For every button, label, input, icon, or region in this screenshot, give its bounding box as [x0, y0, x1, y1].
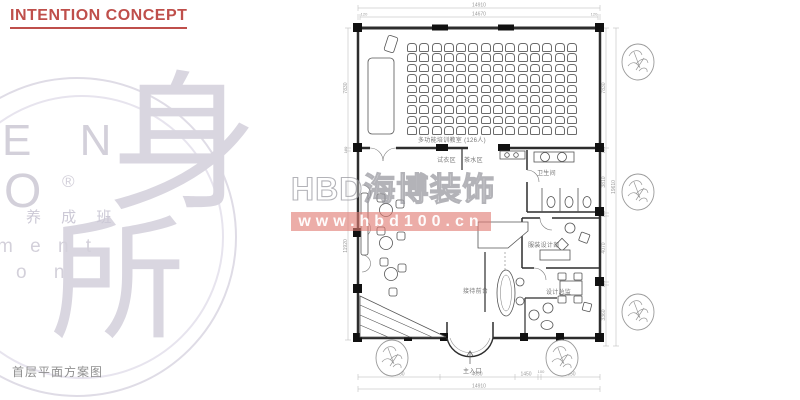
seat-icon — [481, 105, 491, 114]
seat-icon — [530, 74, 540, 83]
seat-icon — [481, 95, 491, 104]
seat-icon — [468, 105, 478, 114]
room-label-design-director: 设计总监 — [546, 287, 571, 296]
seat-icon — [505, 95, 515, 104]
seat-icon — [481, 53, 491, 62]
seat-icon — [518, 95, 528, 104]
seat-icon — [542, 95, 552, 104]
seat-icon — [419, 95, 429, 104]
seat-icon — [542, 126, 552, 135]
seat-icon — [419, 85, 429, 94]
dim-label: 14910 — [472, 384, 486, 390]
seat-icon — [505, 126, 515, 135]
seat-icon — [456, 74, 466, 83]
room-label-classroom: 多功能培训教室 (126人) — [418, 135, 486, 144]
seat-icon — [505, 105, 515, 114]
seat-icon — [432, 116, 442, 125]
dim-label: 7830 — [343, 82, 349, 93]
seat-icon — [407, 53, 417, 62]
seat-icon — [493, 85, 503, 94]
seat-icon — [468, 74, 478, 83]
seat-icon — [505, 116, 515, 125]
seat-icon — [555, 105, 565, 114]
dim-label: 14910 — [472, 3, 486, 9]
room-label-fitting: 试衣区 — [437, 155, 456, 164]
seat-icon — [530, 43, 540, 52]
seat-icon — [518, 85, 528, 94]
seat-icon — [481, 116, 491, 125]
seat-icon — [555, 53, 565, 62]
seat-icon — [444, 53, 454, 62]
seat-icon — [493, 95, 503, 104]
seat-icon — [567, 85, 577, 94]
logo-calligraphy-bottom: 所 — [50, 213, 185, 348]
seat-icon — [555, 74, 565, 83]
seat-icon — [468, 116, 478, 125]
logo-text-fragment: O — [4, 164, 45, 219]
dim-label: 120 — [361, 12, 368, 17]
dim-label: 180 — [343, 146, 348, 153]
seat-icon — [407, 74, 417, 83]
classroom-seats — [407, 43, 579, 137]
room-label-toilet: 卫生间 — [537, 168, 556, 177]
seat-icon — [456, 85, 466, 94]
seat-icon — [505, 74, 515, 83]
seat-icon — [555, 95, 565, 104]
seat-icon — [567, 43, 577, 52]
seat-icon — [468, 85, 478, 94]
logo-text-fragment: E N — [2, 116, 129, 166]
seat-icon — [518, 105, 528, 114]
seat-icon — [432, 105, 442, 114]
seat-icon — [493, 53, 503, 62]
seat-icon — [419, 53, 429, 62]
registered-mark-icon: ® — [62, 172, 75, 192]
seat-icon — [468, 43, 478, 52]
seat-icon — [530, 64, 540, 73]
seat-icon — [530, 126, 540, 135]
seat-icon — [555, 116, 565, 125]
seat-icon — [444, 105, 454, 114]
seat-icon — [407, 85, 417, 94]
seat-icon — [505, 43, 515, 52]
seat-icon — [432, 74, 442, 83]
seat-icon — [542, 43, 552, 52]
tree-icon — [546, 340, 578, 376]
seat-icon — [505, 53, 515, 62]
seat-icon — [567, 105, 577, 114]
seat-icon — [419, 43, 429, 52]
seat-icon — [407, 43, 417, 52]
dim-label: 19610 — [611, 180, 617, 194]
seat-icon — [518, 74, 528, 83]
seat-icon — [456, 116, 466, 125]
seat-icon — [493, 74, 503, 83]
seat-icon — [456, 105, 466, 114]
seat-icon — [567, 53, 577, 62]
seat-icon — [542, 85, 552, 94]
tree-icon — [622, 294, 654, 330]
seat-icon — [530, 95, 540, 104]
seat-icon — [432, 126, 442, 135]
seat-icon — [481, 43, 491, 52]
seat-icon — [542, 53, 552, 62]
seat-icon — [419, 116, 429, 125]
seat-icon — [419, 126, 429, 135]
seat-icon — [419, 64, 429, 73]
seat-icon — [468, 64, 478, 73]
dim-label: 7830 — [601, 82, 607, 93]
seat-icon — [456, 95, 466, 104]
seat-icon — [518, 53, 528, 62]
seat-icon — [419, 74, 429, 83]
seat-icon — [444, 116, 454, 125]
page-title: INTENTION CONCEPT — [10, 7, 187, 29]
logo-calligraphy-top: 身 — [108, 70, 258, 220]
seat-icon — [530, 85, 540, 94]
seat-icon — [481, 64, 491, 73]
seat-icon — [542, 105, 552, 114]
dim-label: 3810 — [601, 176, 607, 187]
seat-icon — [419, 105, 429, 114]
dim-label: 3360 — [601, 309, 607, 320]
seat-icon — [505, 64, 515, 73]
seat-icon — [555, 43, 565, 52]
seat-icon — [493, 126, 503, 135]
seat-icon — [432, 95, 442, 104]
seat-icon — [407, 105, 417, 114]
seat-icon — [530, 53, 540, 62]
logo-text-fragment: m e n t — [0, 236, 97, 258]
tree-icon — [376, 340, 408, 376]
slide: 身 所 E N O ® 养 成 班 m e n t o n INTENTION … — [0, 0, 800, 400]
seat-icon — [481, 85, 491, 94]
room-label-design-dept: 服装设计部 — [528, 240, 560, 249]
room-label-reception: 接待前台 — [463, 286, 488, 295]
seat-icon — [542, 116, 552, 125]
seat-icon — [456, 126, 466, 135]
seat-icon — [407, 126, 417, 135]
seat-icon — [456, 53, 466, 62]
seat-icon — [456, 43, 466, 52]
seat-icon — [468, 126, 478, 135]
seat-icon — [493, 64, 503, 73]
seat-icon — [555, 64, 565, 73]
seat-icon — [468, 95, 478, 104]
logo-text-fragment: o n — [16, 262, 75, 284]
dim-label: 4070 — [601, 242, 607, 253]
plan-caption: 首层平面方案图 — [12, 363, 103, 380]
dim-label: 14670 — [472, 12, 486, 18]
seat-icon — [567, 74, 577, 83]
seat-icon — [481, 74, 491, 83]
seat-icon — [481, 126, 491, 135]
seat-icon — [456, 64, 466, 73]
seat-icon — [493, 116, 503, 125]
dim-label: 100 — [538, 369, 545, 374]
main-entrance-arc — [447, 338, 493, 364]
room-label-entrance: 主入口 — [463, 366, 482, 375]
seat-icon — [432, 43, 442, 52]
seat-icon — [444, 43, 454, 52]
seat-icon — [444, 95, 454, 104]
seat-icon — [407, 95, 417, 104]
seat-icon — [555, 126, 565, 135]
seat-icon — [542, 64, 552, 73]
seat-icon — [567, 64, 577, 73]
dim-label: 120 — [591, 12, 598, 17]
seat-icon — [555, 85, 565, 94]
seat-icon — [542, 74, 552, 83]
seat-icon — [493, 105, 503, 114]
seat-icon — [567, 126, 577, 135]
seat-icon — [468, 53, 478, 62]
seat-icon — [567, 116, 577, 125]
tree-icon — [622, 174, 654, 210]
seat-icon — [432, 85, 442, 94]
seat-icon — [518, 116, 528, 125]
brand-watermark: 身 所 E N O ® 养 成 班 m e n t o n — [0, 0, 320, 400]
dim-label: 1450 — [520, 372, 531, 378]
seat-icon — [505, 85, 515, 94]
seat-icon — [432, 64, 442, 73]
seat-icon — [493, 43, 503, 52]
logo-inner-circle-icon — [0, 95, 224, 379]
seat-icon — [444, 126, 454, 135]
seat-icon — [407, 64, 417, 73]
seat-icon — [567, 95, 577, 104]
seat-icon — [518, 64, 528, 73]
dim-label: 11920 — [343, 239, 349, 253]
seat-icon — [444, 85, 454, 94]
seat-icon — [444, 64, 454, 73]
seat-icon — [530, 116, 540, 125]
seat-icon — [530, 105, 540, 114]
tree-icon — [622, 44, 654, 80]
seat-icon — [432, 53, 442, 62]
logo-text-fragment: 养 成 班 — [26, 206, 119, 227]
seat-icon — [518, 43, 528, 52]
seat-icon — [407, 116, 417, 125]
logo-circle-icon — [0, 77, 237, 397]
seat-icon — [444, 74, 454, 83]
seat-icon — [518, 126, 528, 135]
room-label-tea: 茶水区 — [464, 155, 483, 164]
